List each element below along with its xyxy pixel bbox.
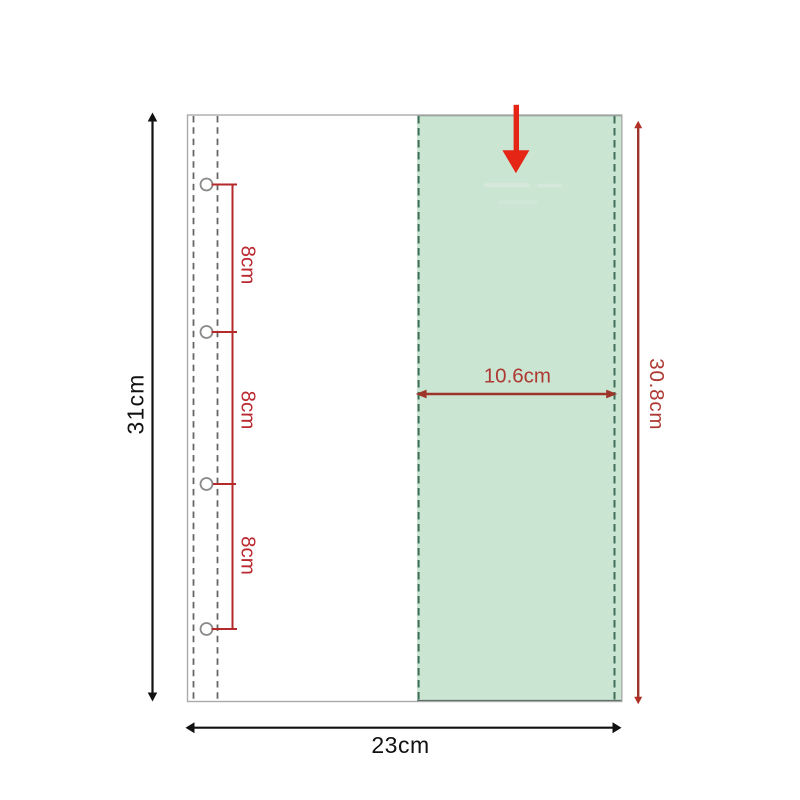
svg-text:30.8cm: 30.8cm: [645, 358, 668, 430]
svg-text:23cm: 23cm: [371, 732, 429, 758]
svg-text:8cm: 8cm: [237, 246, 260, 285]
svg-text:8cm: 8cm: [237, 536, 260, 575]
svg-text:8cm: 8cm: [237, 391, 260, 430]
svg-text:31cm: 31cm: [122, 373, 148, 434]
svg-text:10.6cm: 10.6cm: [484, 364, 551, 387]
